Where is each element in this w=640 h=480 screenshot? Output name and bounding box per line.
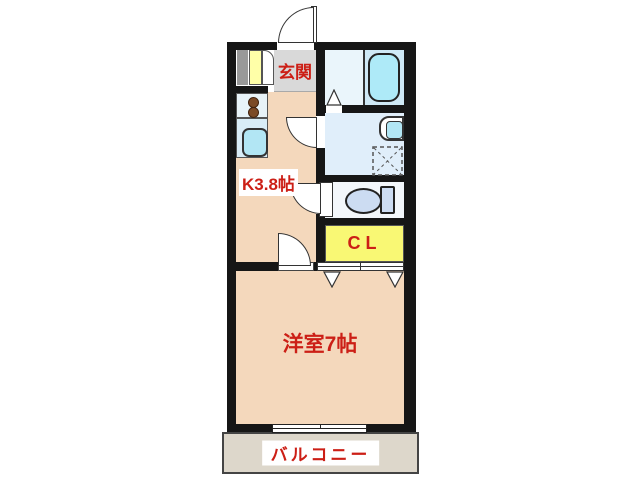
wall-toilet-closet	[316, 218, 404, 225]
shoe-cabinet	[249, 50, 262, 85]
bathtub	[368, 53, 400, 102]
wall-left	[227, 42, 236, 432]
closet-label: CL	[325, 225, 404, 262]
wall-top-right-segment	[314, 42, 416, 50]
toilet-tank	[380, 186, 395, 214]
entrance-label: 玄関	[274, 50, 316, 90]
wall-right	[404, 42, 416, 432]
wall-bath-washroom-a	[316, 105, 326, 113]
main-room-label: 洋室7帖	[250, 330, 390, 356]
toilet-bowl	[345, 188, 382, 214]
balcony-window	[272, 424, 367, 433]
wall-kitchen-room-left	[227, 262, 278, 271]
kitchen-sink-basin	[242, 128, 268, 157]
entrance-cabinet	[262, 50, 274, 85]
balcony: バルコニー	[222, 432, 419, 474]
wall-washroom-toilet	[316, 175, 404, 182]
refrigerator-space	[237, 50, 248, 85]
bath-folding-door-icon	[326, 89, 343, 106]
kitchen-sink-unit	[236, 118, 268, 158]
burner-icon	[248, 107, 259, 118]
stove-unit	[236, 93, 268, 118]
washbasin	[379, 116, 404, 141]
window-center-tick	[320, 425, 321, 429]
entrance-door-arc	[278, 7, 314, 43]
washing-machine-pan-icon	[372, 146, 403, 176]
floorplan: バルコニー 玄関 K3.8帖 CL 洋室7帖	[0, 0, 640, 480]
bath-doorway	[326, 105, 342, 113]
washroom-doorway	[316, 116, 325, 148]
closet-door-track	[317, 262, 404, 271]
closet-folding-door-icon	[386, 271, 404, 288]
toilet-door-leaf	[319, 182, 333, 217]
balcony-label: バルコニー	[262, 441, 380, 466]
kitchen-label: K3.8帖	[239, 169, 298, 196]
wall-bath-washroom-b	[342, 105, 404, 113]
washbasin-bowl	[386, 121, 403, 139]
closet-track-divider	[360, 263, 361, 270]
closet-folding-door-icon	[323, 271, 341, 288]
